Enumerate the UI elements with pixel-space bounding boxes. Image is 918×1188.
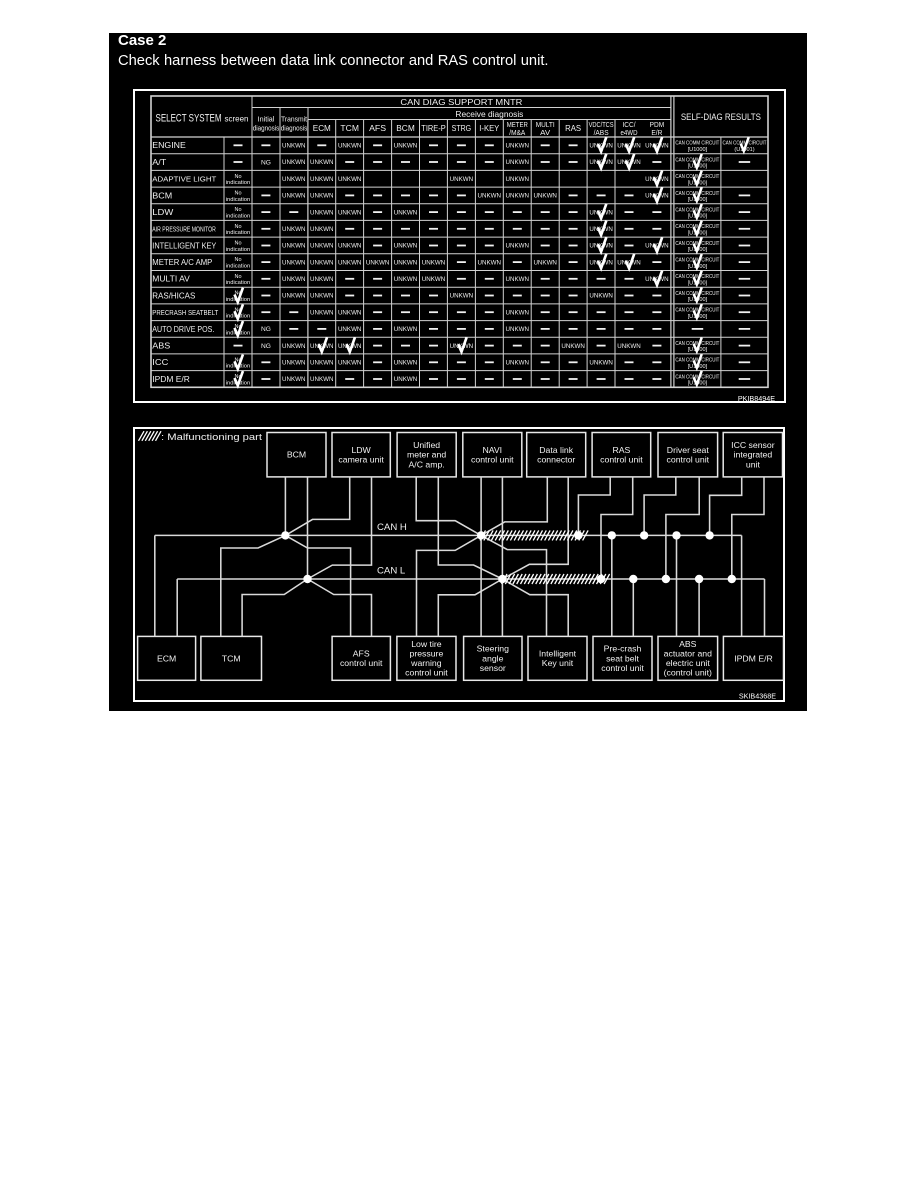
- svg-text:control unit: control unit: [601, 663, 644, 673]
- svg-text:No: No: [234, 274, 241, 280]
- svg-text:NG: NG: [261, 326, 271, 333]
- svg-text:TCM: TCM: [340, 124, 359, 133]
- svg-text:UNKWN: UNKWN: [394, 326, 418, 333]
- svg-text:control unit: control unit: [471, 455, 514, 465]
- svg-text:AUTO DRIVE POS.: AUTO DRIVE POS.: [152, 324, 214, 334]
- svg-text:No: No: [234, 191, 241, 197]
- svg-text:Low tire: Low tire: [411, 639, 442, 649]
- svg-text:Unified: Unified: [413, 440, 440, 450]
- svg-text:BCM: BCM: [396, 124, 415, 133]
- svg-text:UNKWN: UNKWN: [450, 293, 474, 300]
- svg-text:control unit: control unit: [340, 658, 383, 668]
- svg-text:control unit: control unit: [600, 455, 643, 465]
- svg-text:ENGINE: ENGINE: [152, 140, 186, 150]
- svg-text:Steering: Steering: [477, 644, 510, 654]
- svg-text:UNKWN: UNKWN: [338, 176, 362, 183]
- svg-text:CAN COMM CIRCUIT: CAN COMM CIRCUIT: [675, 141, 719, 147]
- svg-text:indication: indication: [226, 280, 251, 286]
- svg-text:UNKWN: UNKWN: [282, 376, 306, 383]
- svg-text:UNKWN: UNKWN: [310, 226, 334, 233]
- svg-text:UNKWN: UNKWN: [338, 259, 362, 266]
- svg-text:ICC: ICC: [152, 357, 168, 367]
- svg-text:Pre-crash: Pre-crash: [604, 644, 642, 654]
- svg-text:: Malfunctioning part: : Malfunctioning part: [161, 432, 263, 442]
- svg-text:Data link: Data link: [539, 445, 573, 455]
- svg-text:diagnosis: diagnosis: [253, 124, 280, 133]
- svg-text:UNKWN: UNKWN: [506, 360, 530, 367]
- svg-text:INTELLIGENT KEY: INTELLIGENT KEY: [152, 240, 216, 250]
- svg-text:NG: NG: [261, 159, 271, 166]
- svg-text:UNKWN: UNKWN: [533, 193, 557, 200]
- svg-text:Receive diagnosis: Receive diagnosis: [455, 109, 523, 119]
- svg-text:e4WD: e4WD: [621, 128, 638, 137]
- svg-text:warning: warning: [410, 658, 442, 668]
- svg-text:AIR PRESSURE MONITOR: AIR PRESSURE MONITOR: [152, 227, 216, 234]
- svg-text:UNKWN: UNKWN: [310, 159, 334, 166]
- svg-text:UNKWN: UNKWN: [561, 343, 585, 350]
- svg-text:UNKWN: UNKWN: [617, 343, 641, 350]
- svg-text:UNKWN: UNKWN: [282, 259, 306, 266]
- svg-text:No: No: [234, 224, 241, 230]
- svg-text:UNKWN: UNKWN: [506, 326, 530, 333]
- svg-text:UNKWN: UNKWN: [338, 326, 362, 333]
- svg-text:indication: indication: [226, 264, 251, 270]
- svg-text:UNKWN: UNKWN: [422, 259, 446, 266]
- svg-text:connector: connector: [537, 455, 575, 465]
- svg-text:UNKWN: UNKWN: [422, 276, 446, 283]
- svg-text:TIRE-P: TIRE-P: [421, 124, 446, 133]
- svg-text:STRG: STRG: [452, 124, 472, 133]
- svg-text:AFS: AFS: [353, 649, 370, 659]
- svg-text:NG: NG: [261, 343, 271, 350]
- svg-text:UNKWN: UNKWN: [310, 276, 334, 283]
- svg-text:AFS: AFS: [369, 124, 386, 133]
- svg-text:Transmit: Transmit: [281, 115, 307, 124]
- svg-text:No: No: [234, 207, 241, 213]
- svg-text:indication: indication: [226, 197, 251, 203]
- svg-text:unit: unit: [746, 459, 761, 469]
- svg-text:LDW: LDW: [152, 207, 174, 217]
- svg-text:RAS: RAS: [565, 124, 581, 133]
- svg-text:Driver seat: Driver seat: [667, 445, 710, 455]
- svg-text:AV: AV: [540, 128, 550, 137]
- svg-text:UNKWN: UNKWN: [394, 143, 418, 150]
- svg-text:(control unit): (control unit): [664, 668, 712, 678]
- svg-text:No: No: [234, 174, 241, 180]
- svg-text:NAVI: NAVI: [482, 445, 502, 455]
- svg-text:UNKWN: UNKWN: [282, 343, 306, 350]
- svg-text:/ABS: /ABS: [594, 128, 609, 137]
- svg-text:ECM: ECM: [313, 124, 331, 133]
- svg-text:camera unit: camera unit: [338, 455, 384, 465]
- svg-text:UNKWN: UNKWN: [338, 243, 362, 250]
- svg-text:UNKWN: UNKWN: [310, 259, 334, 266]
- svg-text:UNKWN: UNKWN: [394, 360, 418, 367]
- svg-text:UNKWN: UNKWN: [394, 259, 418, 266]
- svg-text:SKIB4368E: SKIB4368E: [739, 692, 776, 701]
- svg-text:UNKWN: UNKWN: [282, 276, 306, 283]
- svg-text:UNKWN: UNKWN: [282, 193, 306, 200]
- svg-text:pressure: pressure: [409, 649, 443, 659]
- svg-text:ICC sensor: ICC sensor: [731, 440, 775, 450]
- svg-text:MULTI AV: MULTI AV: [152, 274, 190, 284]
- svg-text:Intelligent: Intelligent: [539, 649, 577, 659]
- svg-text:seat belt: seat belt: [606, 653, 639, 663]
- svg-text:METER A/C AMP: METER A/C AMP: [152, 257, 212, 267]
- svg-text:A/T: A/T: [152, 157, 167, 167]
- svg-text:LDW: LDW: [351, 445, 371, 455]
- svg-text:control unit: control unit: [405, 668, 448, 678]
- svg-text:UNKWN: UNKWN: [282, 360, 306, 367]
- svg-text:TCM: TCM: [222, 653, 241, 663]
- svg-text:UNKWN: UNKWN: [506, 159, 530, 166]
- svg-text:No: No: [234, 241, 241, 247]
- svg-text:sensor: sensor: [480, 663, 506, 673]
- svg-text:UNKWN: UNKWN: [310, 209, 334, 216]
- svg-text:control unit: control unit: [667, 455, 710, 465]
- svg-text:I-KEY: I-KEY: [479, 124, 500, 133]
- svg-text:ABS: ABS: [152, 341, 170, 351]
- svg-text:BCM: BCM: [152, 190, 172, 200]
- svg-text:ABS: ABS: [679, 639, 697, 649]
- svg-text:ECM: ECM: [157, 653, 176, 663]
- svg-text:ADAPTIVE LIGHT: ADAPTIVE LIGHT: [152, 177, 217, 184]
- svg-text:IPDM E/R: IPDM E/R: [734, 653, 773, 663]
- svg-text:PKIB8494E: PKIB8494E: [738, 394, 775, 403]
- svg-text:UNKWN: UNKWN: [338, 360, 362, 367]
- svg-text:E/R: E/R: [651, 128, 662, 137]
- svg-text:indication: indication: [226, 230, 251, 236]
- svg-text:Key unit: Key unit: [542, 658, 574, 668]
- svg-text:integrated: integrated: [734, 450, 773, 460]
- svg-text:electric unit: electric unit: [666, 658, 711, 668]
- svg-text:indication: indication: [226, 214, 251, 220]
- svg-text:[U1000]: [U1000]: [688, 147, 708, 153]
- svg-text:UNKWN: UNKWN: [478, 259, 502, 266]
- svg-text:UNKWN: UNKWN: [506, 243, 530, 250]
- svg-text:UNKWN: UNKWN: [310, 309, 334, 316]
- svg-text:UNKWN: UNKWN: [589, 360, 613, 367]
- svg-text:No: No: [234, 257, 241, 263]
- svg-text:IPDM E/R: IPDM E/R: [152, 374, 190, 384]
- svg-text:UNKWN: UNKWN: [310, 293, 334, 300]
- svg-text:UNKWN: UNKWN: [338, 309, 362, 316]
- svg-text:SELF-DIAG RESULTS: SELF-DIAG RESULTS: [681, 112, 761, 122]
- svg-text:Initial: Initial: [258, 115, 275, 124]
- svg-text:UNKWN: UNKWN: [338, 209, 362, 216]
- svg-text:UNKWN: UNKWN: [533, 259, 557, 266]
- svg-text:UNKWN: UNKWN: [394, 243, 418, 250]
- svg-text:UNKWN: UNKWN: [394, 276, 418, 283]
- svg-text:BCM: BCM: [287, 450, 306, 460]
- svg-text:UNKWN: UNKWN: [310, 193, 334, 200]
- svg-text:CAN H: CAN H: [377, 522, 407, 533]
- svg-text:UNKWN: UNKWN: [366, 259, 390, 266]
- svg-text:UNKWN: UNKWN: [282, 293, 306, 300]
- svg-text:UNKWN: UNKWN: [282, 143, 306, 150]
- svg-text:A/C amp.: A/C amp.: [408, 459, 444, 469]
- svg-text:indication: indication: [226, 247, 251, 253]
- svg-text:angle: angle: [482, 653, 503, 663]
- svg-text:actuator and: actuator and: [664, 649, 712, 659]
- svg-text:UNKWN: UNKWN: [506, 176, 530, 183]
- svg-text:UNKWN: UNKWN: [282, 243, 306, 250]
- svg-text:UNKWN: UNKWN: [310, 176, 334, 183]
- svg-text:UNKWN: UNKWN: [394, 376, 418, 383]
- svg-text:RAS/HICAS: RAS/HICAS: [152, 290, 195, 300]
- svg-text:UNKWN: UNKWN: [450, 176, 474, 183]
- svg-text:UNKWN: UNKWN: [310, 243, 334, 250]
- svg-text:UNKWN: UNKWN: [282, 226, 306, 233]
- svg-text:diagnosis: diagnosis: [281, 124, 308, 133]
- svg-text:UNKWN: UNKWN: [506, 309, 530, 316]
- svg-text:UNKWN: UNKWN: [282, 176, 306, 183]
- svg-text:screen: screen: [225, 114, 249, 124]
- svg-text:/M&A: /M&A: [509, 128, 525, 137]
- svg-text:UNKWN: UNKWN: [282, 159, 306, 166]
- svg-text:UNKWN: UNKWN: [506, 276, 530, 283]
- svg-text:UNKWN: UNKWN: [310, 376, 334, 383]
- svg-text:indication: indication: [226, 180, 251, 186]
- svg-text:PRECRASH SEATBELT: PRECRASH SEATBELT: [152, 310, 219, 317]
- svg-text:UNKWN: UNKWN: [589, 293, 613, 300]
- svg-text:UNKWN: UNKWN: [338, 143, 362, 150]
- svg-text:UNKWN: UNKWN: [506, 193, 530, 200]
- svg-text:CAN DIAG SUPPORT MNTR: CAN DIAG SUPPORT MNTR: [400, 97, 522, 107]
- svg-text:UNKWN: UNKWN: [478, 193, 502, 200]
- svg-text:RAS: RAS: [612, 445, 630, 455]
- svg-text:UNKWN: UNKWN: [506, 143, 530, 150]
- svg-text:meter and: meter and: [407, 450, 446, 460]
- svg-text:UNKWN: UNKWN: [394, 209, 418, 216]
- svg-text:CAN L: CAN L: [377, 566, 406, 577]
- svg-text:SELECT SYSTEM: SELECT SYSTEM: [156, 113, 222, 125]
- svg-text:UNKWN: UNKWN: [310, 360, 334, 367]
